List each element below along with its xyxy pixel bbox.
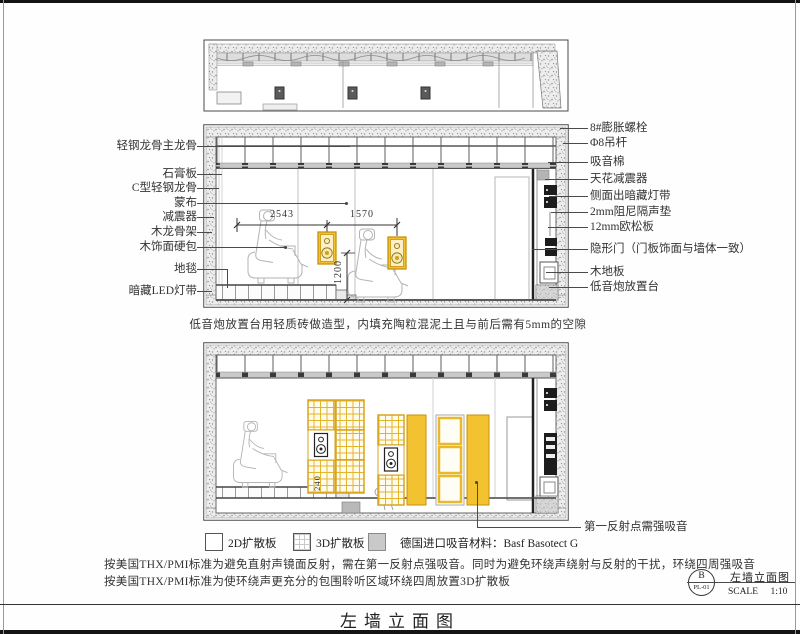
leader-line bbox=[197, 217, 214, 218]
leader-dot bbox=[284, 246, 287, 249]
label-upholstered-panel: 木饰面硬包 bbox=[140, 241, 198, 254]
label-damping-pad: 2mm阻尼隔声垫 bbox=[590, 206, 671, 219]
leader-line bbox=[532, 249, 588, 250]
plan-cabinet bbox=[263, 104, 297, 110]
label-wood-frame: 木龙骨架 bbox=[151, 226, 197, 239]
ceiling-hanger-rods bbox=[216, 355, 556, 372]
leader-line bbox=[549, 287, 588, 288]
riser-step bbox=[336, 290, 347, 300]
leader-line bbox=[551, 212, 588, 213]
sheet-title: 左墙立面图 bbox=[0, 607, 800, 632]
leader-line bbox=[227, 269, 228, 288]
titleblock-scale-word: SCALE bbox=[725, 587, 761, 597]
leader-dot bbox=[345, 202, 348, 205]
legend-swatch-absorber bbox=[368, 533, 386, 551]
label-hidden-door: 隐形门（门板饰面与墙体一致） bbox=[590, 243, 751, 256]
sheet-border-top bbox=[0, 0, 800, 3]
sheet-border-left bbox=[3, 0, 4, 634]
callout-first-reflection: 第一反射点需强吸音 bbox=[584, 521, 688, 534]
leader-line bbox=[197, 232, 212, 233]
label-acoustic-cotton: 吸音棉 bbox=[590, 156, 625, 169]
label-expansion-bolt: 8#膨胀螺栓 bbox=[590, 122, 648, 135]
wall-speaker-icon bbox=[388, 237, 406, 269]
sheet-border-right bbox=[795, 0, 796, 634]
first-reflection-absorber bbox=[467, 415, 489, 505]
label-osb-board: 12mm欧松板 bbox=[590, 221, 654, 234]
hidden-door-panel bbox=[507, 417, 533, 500]
label-subwoofer-platform: 低音炮放置台 bbox=[590, 281, 659, 294]
leader-line bbox=[548, 162, 588, 163]
label-ceiling-isolator: 天花减震器 bbox=[590, 173, 648, 186]
label-hanger-rod: Φ8吊杆 bbox=[590, 137, 627, 150]
leader-line bbox=[548, 227, 588, 228]
label-c-stud: C型轻钢龙骨 bbox=[132, 182, 197, 195]
ceiling-plan-view bbox=[203, 38, 569, 113]
note-line-1: 按美国THX/PMI标准为避免直射声镜面反射，需在第一反射点强吸音。同时为避免环… bbox=[104, 556, 755, 572]
inwall-speaker-icon bbox=[315, 434, 328, 457]
label-wood-floor: 木地板 bbox=[590, 266, 625, 279]
title-strip-line bbox=[0, 604, 800, 605]
callout-leader bbox=[477, 527, 581, 528]
legend-swatch-3d bbox=[293, 533, 311, 551]
leader-line bbox=[546, 272, 588, 273]
legend-label-2d: 2D扩散板 bbox=[228, 535, 277, 551]
leader-line bbox=[560, 128, 588, 129]
plan-corner-block bbox=[217, 92, 241, 104]
detail-sheet-no: PL-01 bbox=[688, 584, 715, 591]
label-fabric: 蒙布 bbox=[174, 197, 197, 210]
legend-swatch-2d bbox=[205, 533, 223, 551]
ceiling-hanger-rods bbox=[216, 137, 556, 163]
label-isolator: 减震器 bbox=[163, 211, 198, 224]
leader-line bbox=[545, 179, 588, 180]
label-side-led: 侧面出暗藏灯带 bbox=[590, 190, 671, 203]
leader-line bbox=[197, 269, 227, 270]
leader-line bbox=[549, 196, 588, 197]
leader-dot bbox=[475, 481, 478, 484]
legend-label-absorber: 德国进口吸音材料：Basf Basotect G bbox=[400, 535, 578, 551]
dim-240: 240 bbox=[312, 468, 322, 498]
absorber-panel bbox=[407, 415, 426, 505]
dim-1200: 1200 bbox=[333, 254, 345, 290]
dim-2543: 2543 bbox=[250, 209, 314, 220]
titleblock-scale-value: 1:10 bbox=[763, 587, 795, 597]
dim-1570: 1570 bbox=[330, 209, 394, 220]
inwall-speaker-icon bbox=[385, 448, 398, 471]
label-gypsum-board: 石膏板 bbox=[163, 168, 198, 181]
leader-line bbox=[197, 188, 219, 189]
diffuser-absorber-group-2 bbox=[378, 415, 426, 505]
view-a-caption: 低音炮放置台用轻质砖做造型，内填充陶粒混泥土且与前后需有5mm的空隙 bbox=[183, 316, 593, 332]
hidden-door-panel bbox=[495, 177, 529, 300]
leader-line bbox=[197, 247, 286, 248]
detail-code: B bbox=[688, 571, 715, 581]
label-main-runner: 轻钢龙骨主龙骨 bbox=[117, 140, 198, 153]
leader-line bbox=[197, 146, 350, 147]
label-carpet: 地毯 bbox=[174, 263, 197, 276]
label-led-strip: 暗藏LED灯带 bbox=[129, 285, 197, 298]
elevation-view-b bbox=[203, 342, 569, 521]
note-line-2: 按美国THX/PMI标准为使环绕声更充分的包围聆听区域环绕四周放置3D扩散板 bbox=[104, 573, 510, 589]
leader-line bbox=[197, 203, 347, 204]
leader-line bbox=[197, 174, 222, 175]
drawing-sheet: 轻钢龙骨主龙骨 石膏板 C型轻钢龙骨 蒙布 减震器 木龙骨架 木饰面硬包 地毯 … bbox=[0, 0, 800, 634]
callout-leader bbox=[477, 483, 478, 527]
titleblock-view-name: 左墙立面图 bbox=[725, 569, 795, 585]
leader-line bbox=[563, 143, 588, 144]
leader-line bbox=[197, 291, 212, 292]
diffuser-2d-group bbox=[436, 415, 464, 505]
legend-label-3d: 3D扩散板 bbox=[316, 535, 365, 551]
